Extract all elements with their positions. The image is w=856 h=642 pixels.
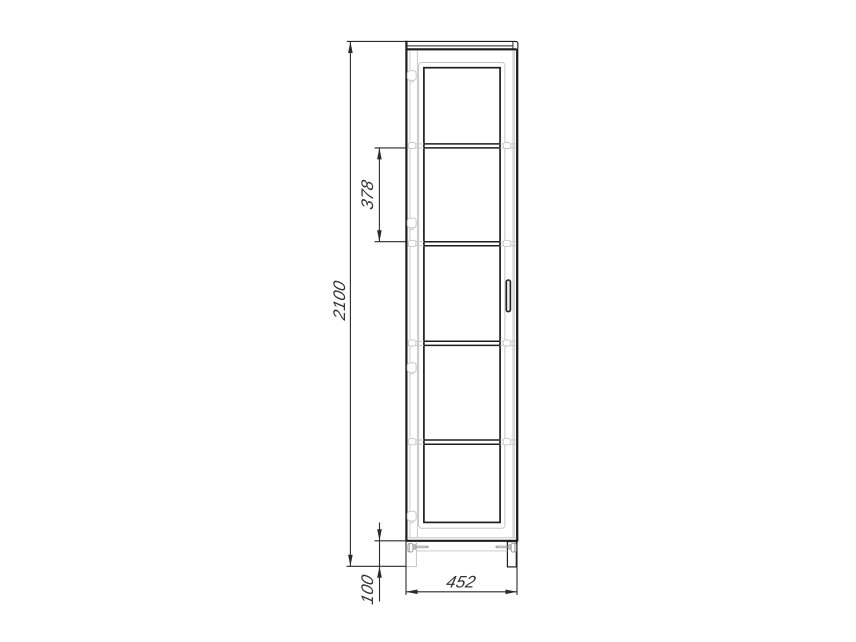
svg-text:378: 378 [358,178,377,211]
svg-text:452: 452 [444,573,477,592]
svg-text:100: 100 [358,573,377,606]
svg-text:2100: 2100 [330,279,349,323]
